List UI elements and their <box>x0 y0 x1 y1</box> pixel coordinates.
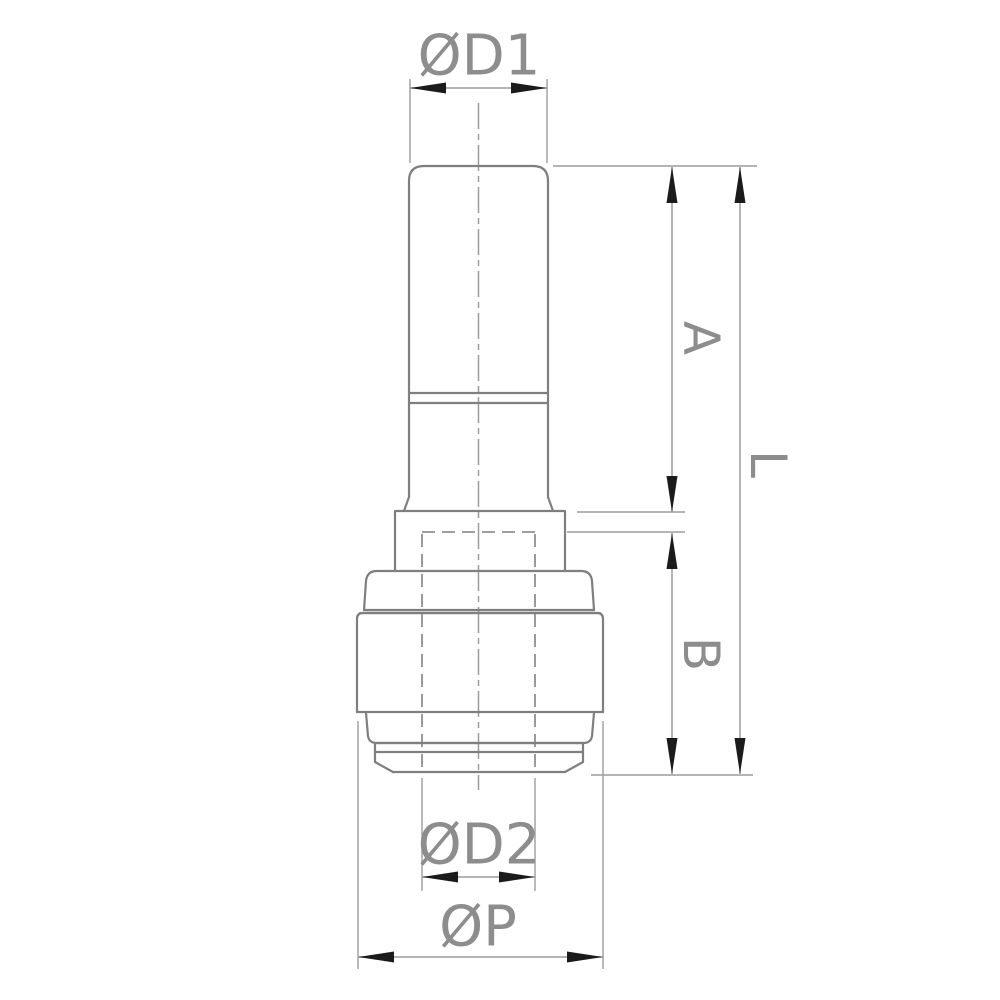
dimension-l: L <box>735 167 798 774</box>
collar <box>395 511 565 571</box>
dim-label-a: A <box>672 321 730 355</box>
arrowhead-down <box>667 738 678 774</box>
drawing-canvas: ØD1 A B L ØD2 <box>0 0 1000 1000</box>
arrowhead-up <box>667 533 678 569</box>
fitting-outline <box>357 166 603 772</box>
arrowhead-up <box>667 167 678 203</box>
arrowhead-left <box>358 952 394 963</box>
stem-flare-left <box>404 497 409 511</box>
bottom-cap-left <box>375 743 393 772</box>
technical-drawing: ØD1 A B L ØD2 <box>0 0 1000 1000</box>
dim-label-d1: ØD1 <box>418 24 541 89</box>
dimension-p: ØP <box>358 895 603 963</box>
arrowhead-down <box>735 738 746 774</box>
dim-label-p: ØP <box>439 895 517 960</box>
dimension-a: A <box>667 167 731 512</box>
dim-label-l: L <box>739 450 797 478</box>
dimension-d1: ØD1 <box>410 24 547 94</box>
body-main <box>357 613 603 712</box>
stem-flare-right <box>548 497 553 511</box>
dimension-b: B <box>667 533 731 774</box>
dimension-d2: ØD2 <box>418 813 541 883</box>
dim-label-d2: ØD2 <box>418 813 541 878</box>
bottom-cap-right <box>565 743 583 772</box>
arrowhead-right <box>567 952 603 963</box>
arrowhead-up <box>735 167 746 203</box>
lower-band <box>366 713 594 743</box>
arrowhead-down <box>667 476 678 512</box>
dim-label-b: B <box>672 637 730 671</box>
